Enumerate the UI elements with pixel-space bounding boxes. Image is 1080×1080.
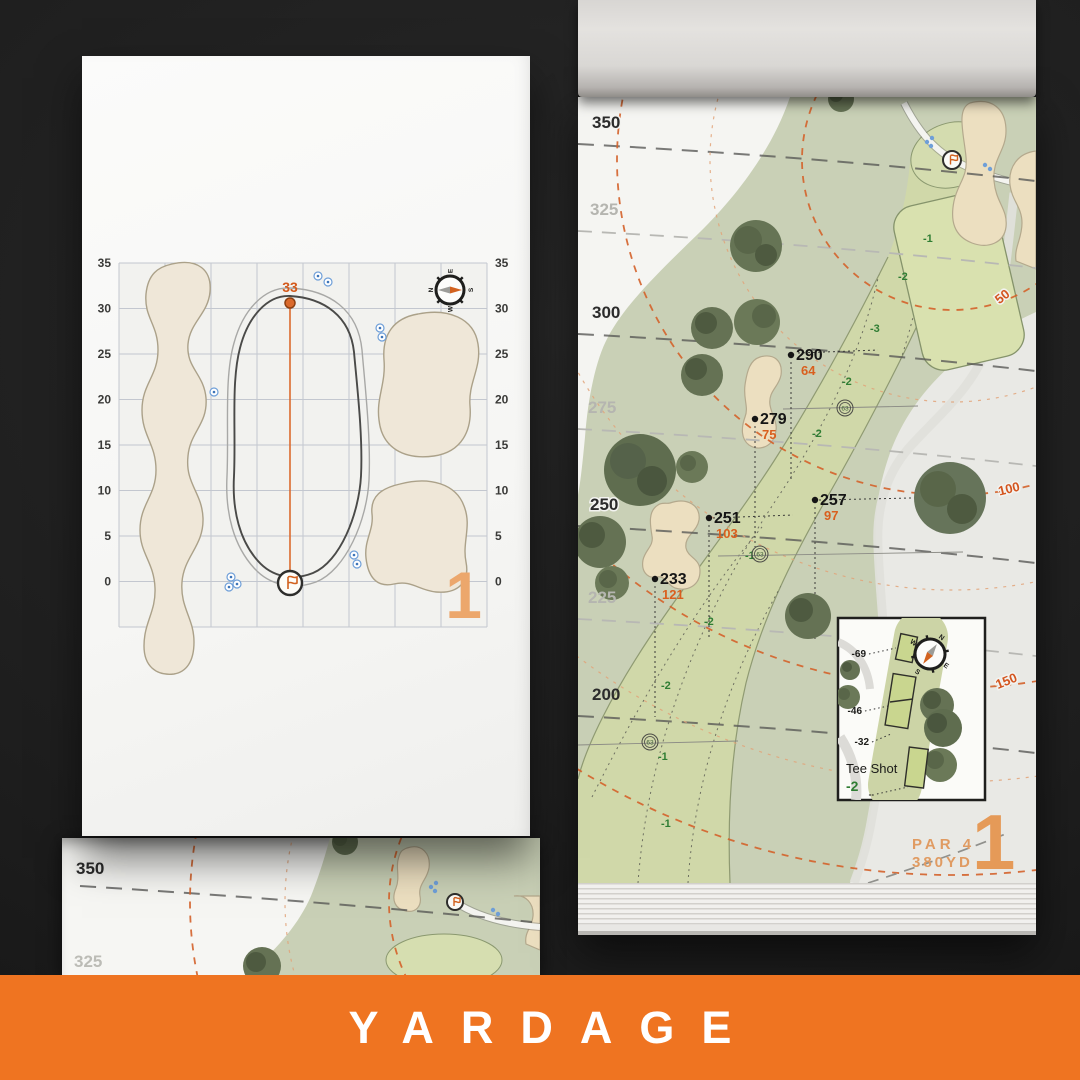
hole-number: 1 [972, 798, 1015, 886]
page-bottom-edge [578, 925, 1036, 931]
hole-number: 1 [445, 558, 482, 632]
svg-text:-69: -69 [852, 649, 867, 660]
svg-text:-2: -2 [661, 680, 671, 692]
svg-text:-2: -2 [842, 376, 852, 388]
tree [691, 307, 733, 349]
svg-text:35: 35 [495, 256, 509, 270]
svg-text:-1: -1 [923, 233, 933, 245]
svg-text:-32: -32 [855, 737, 870, 748]
svg-text:350: 350 [592, 113, 620, 132]
pin-flag-icon [447, 894, 463, 910]
compass-e: E [448, 268, 455, 273]
svg-text:250: 250 [590, 495, 618, 514]
svg-text:20: 20 [495, 393, 509, 407]
svg-text:--: -- [869, 790, 875, 799]
svg-text:233: 233 [660, 571, 687, 588]
page-bottom-shadow [578, 931, 1036, 935]
svg-text:103: 103 [716, 526, 738, 541]
apex-distance-label: 33 [282, 279, 298, 295]
under-page-map: 350 325 [62, 838, 540, 975]
compass-w: W [448, 305, 455, 312]
svg-text:200: 200 [592, 685, 620, 704]
svg-text:63: 63 [756, 552, 764, 559]
hole-map: -1 -2 -3 -2 -2 -2 -2 -1 -1 -1 63 63 63 2… [578, 97, 1036, 935]
green-detail-page: 33 [82, 56, 530, 836]
svg-text:97: 97 [824, 508, 838, 523]
tree [734, 299, 780, 345]
banner-title: YARDAGE [322, 1002, 759, 1054]
compass-n: N [428, 287, 435, 292]
tree [914, 462, 986, 534]
svg-text:-2: -2 [704, 616, 714, 628]
svg-text:64: 64 [801, 363, 816, 378]
yardage-label: 380YD [912, 854, 973, 871]
apex-dot [285, 298, 295, 308]
svg-text:15: 15 [495, 438, 509, 452]
distance-label: 325 [74, 952, 102, 971]
tee-shot-slope: -2 [846, 778, 859, 794]
svg-text:75: 75 [762, 427, 776, 442]
svg-text:-1: -1 [658, 751, 668, 763]
svg-text:25: 25 [98, 347, 112, 361]
svg-text:-46: -46 [848, 706, 863, 717]
svg-text:63: 63 [841, 406, 849, 413]
svg-text:-2: -2 [898, 271, 908, 283]
tee-shot-inset: -69 -46 -32 -- Tee Shot -2 N [836, 606, 985, 816]
yardage-book-mockup: 350 325 [0, 0, 1080, 1080]
svg-text:275: 275 [588, 398, 616, 417]
compass-s: S [468, 287, 475, 292]
tree [676, 451, 708, 483]
svg-text:279: 279 [760, 411, 787, 428]
svg-text:0: 0 [104, 575, 111, 589]
svg-text:325: 325 [590, 200, 618, 219]
svg-text:63: 63 [646, 740, 654, 747]
tee-shot-title: Tee Shot [846, 761, 898, 776]
svg-text:-1: -1 [661, 818, 671, 830]
svg-text:20: 20 [98, 393, 112, 407]
svg-text:10: 10 [98, 484, 112, 498]
svg-text:30: 30 [98, 302, 112, 316]
hole-map-page: -1 -2 -3 -2 -2 -2 -2 -1 -1 -1 63 63 63 2… [578, 97, 1036, 935]
svg-text:225: 225 [588, 588, 616, 607]
bunker [378, 312, 478, 456]
svg-text:15: 15 [98, 438, 112, 452]
svg-text:251: 251 [714, 510, 741, 527]
svg-text:30: 30 [495, 302, 509, 316]
svg-text:257: 257 [820, 492, 847, 509]
svg-text:35: 35 [98, 256, 112, 270]
svg-text:300: 300 [592, 303, 620, 322]
svg-text:25: 25 [495, 347, 509, 361]
svg-text:121: 121 [662, 587, 684, 602]
rolled-page-curl [578, 0, 1036, 97]
svg-text:-3: -3 [870, 323, 880, 335]
svg-text:5: 5 [495, 529, 502, 543]
svg-text:5: 5 [104, 529, 111, 543]
yardage-banner: YARDAGE [0, 975, 1080, 1080]
svg-text:290: 290 [796, 347, 823, 364]
svg-text:-1: -1 [745, 550, 755, 562]
pin-flag-icon [278, 571, 302, 595]
tree [730, 220, 782, 272]
svg-text:10: 10 [495, 484, 509, 498]
binding-ridges [578, 883, 1036, 925]
tree [924, 709, 962, 747]
tree [840, 660, 860, 680]
svg-text:0: 0 [495, 575, 502, 589]
distance-label: 350 [76, 859, 104, 878]
tree [785, 593, 831, 639]
green-detail-map: 33 [82, 56, 530, 836]
svg-text:-2: -2 [812, 428, 822, 440]
pin-flag-icon [943, 151, 961, 169]
tree [681, 354, 723, 396]
left-under-page: 350 325 [62, 838, 540, 975]
par-label: PAR 4 [912, 836, 975, 853]
